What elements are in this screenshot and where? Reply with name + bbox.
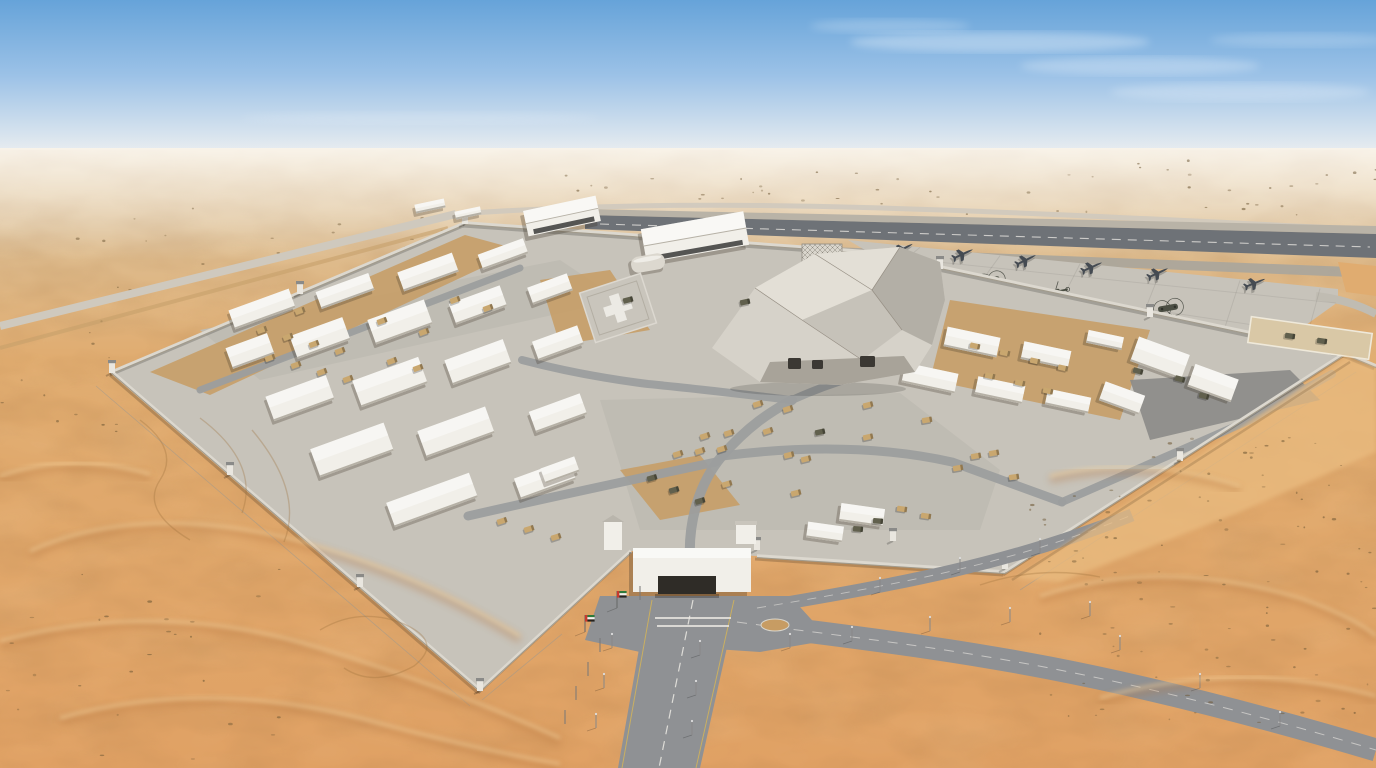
shrub <box>1328 485 1330 486</box>
shrub <box>1095 715 1097 716</box>
entrance-opening <box>860 356 875 367</box>
shrub <box>129 671 133 673</box>
shrub <box>1271 639 1276 641</box>
shrub <box>101 424 104 426</box>
shrub <box>81 574 83 575</box>
shrub <box>277 716 281 718</box>
shrub <box>1170 606 1175 607</box>
shrub <box>1105 536 1109 539</box>
shrub <box>1117 655 1120 657</box>
shrub <box>1296 492 1298 495</box>
shrub <box>1188 186 1191 188</box>
shrub <box>145 240 147 241</box>
cloud <box>1020 57 1260 75</box>
shrub <box>759 185 762 187</box>
shrub <box>1250 456 1253 458</box>
shrub <box>1216 657 1219 659</box>
shrub <box>271 238 274 239</box>
shrub <box>1289 185 1293 186</box>
shrub <box>1249 452 1254 453</box>
shrub <box>1243 452 1247 454</box>
shrub <box>929 191 932 193</box>
shrub <box>1255 447 1257 448</box>
shrub <box>1228 189 1232 191</box>
gate-bay <box>658 576 716 594</box>
shrub <box>590 185 592 187</box>
shrub <box>1082 558 1084 559</box>
shrub <box>1119 496 1121 497</box>
shrub <box>855 173 858 174</box>
aerial-photograph: Aerial photograph of a walled military b… <box>0 0 1376 768</box>
shrub <box>1048 561 1051 562</box>
shrub <box>1303 526 1305 528</box>
shrub <box>1297 526 1299 527</box>
shrub <box>9 643 13 644</box>
shrub <box>1137 163 1140 165</box>
shrub <box>1208 701 1213 703</box>
shrub <box>6 690 10 691</box>
shrub <box>1068 715 1070 717</box>
shrub <box>133 218 135 219</box>
shrub <box>1315 183 1318 184</box>
shrub <box>203 680 205 682</box>
shrub <box>1365 587 1368 588</box>
shrub <box>1180 470 1182 472</box>
shrub <box>1166 169 1169 171</box>
shrub <box>76 238 80 240</box>
shrub <box>117 287 119 288</box>
shrub <box>1325 174 1328 176</box>
shrub <box>1257 722 1261 723</box>
shrub <box>1139 167 1141 169</box>
shrub <box>604 186 608 188</box>
shrub <box>1029 509 1031 511</box>
shrub <box>1 402 4 403</box>
shrub <box>1314 443 1316 444</box>
cloud <box>850 32 1150 52</box>
shrub <box>1340 465 1342 466</box>
shrub <box>1161 544 1163 546</box>
shrub <box>1137 581 1142 584</box>
shrub <box>98 619 100 621</box>
shrub <box>1110 627 1114 628</box>
shrub <box>1147 500 1151 502</box>
shrub <box>1044 524 1047 526</box>
shrub <box>1105 511 1110 513</box>
shrub <box>701 194 705 196</box>
shrub <box>1074 550 1079 552</box>
shrub <box>876 189 880 191</box>
shrub <box>650 178 654 179</box>
shrub <box>117 714 119 716</box>
entrance-opening <box>788 358 801 369</box>
shrub <box>576 190 579 192</box>
shrub <box>1207 500 1209 502</box>
shrub <box>1315 674 1318 675</box>
shrub <box>228 723 233 726</box>
shrub <box>1242 208 1246 210</box>
cloud <box>240 112 600 124</box>
shrub <box>1187 159 1190 162</box>
shrub <box>164 618 169 620</box>
shrub <box>1113 646 1115 648</box>
shrub <box>1264 445 1268 447</box>
entrance-opening <box>812 360 823 369</box>
shrub <box>1323 516 1325 518</box>
shrub <box>1073 495 1076 497</box>
shrub <box>1368 552 1371 554</box>
shrub <box>43 394 45 396</box>
shrub <box>1072 560 1077 562</box>
cloud <box>810 19 970 33</box>
shrub <box>1353 171 1357 174</box>
shrub <box>1226 666 1230 668</box>
shrub <box>192 208 194 210</box>
shrub <box>1204 575 1209 576</box>
shrub <box>278 569 281 570</box>
shrub <box>740 178 742 180</box>
shrub <box>91 343 94 345</box>
shrub <box>271 734 275 735</box>
shrub <box>1113 572 1116 574</box>
shrub <box>1281 205 1284 207</box>
shrub <box>1101 580 1103 581</box>
shrub <box>698 198 701 199</box>
shrub <box>1281 440 1284 442</box>
shrub <box>1224 528 1228 531</box>
traffic-island <box>761 619 789 631</box>
shrub <box>1280 544 1285 545</box>
shrub <box>1315 570 1318 572</box>
shrub <box>1103 633 1107 635</box>
shrub <box>256 595 261 597</box>
shrub <box>338 223 342 225</box>
shrub <box>768 193 770 195</box>
shrub <box>1085 211 1087 213</box>
shrub <box>30 617 35 618</box>
shrub <box>1332 518 1336 520</box>
shrub <box>1347 573 1350 575</box>
shrub <box>1346 628 1350 630</box>
shrub <box>1030 504 1035 506</box>
shrub <box>1246 203 1249 205</box>
shrub <box>761 190 763 192</box>
shrub <box>1185 695 1190 697</box>
shrub <box>1042 518 1046 520</box>
shrub <box>78 685 81 686</box>
shrub <box>1205 649 1209 651</box>
shrub <box>1267 581 1270 582</box>
gate-plaza <box>585 596 830 652</box>
shrub <box>1296 214 1298 215</box>
shrub <box>190 621 195 623</box>
shrub <box>1140 651 1142 653</box>
shrub <box>1092 176 1094 178</box>
scene-svg: Aerial photograph of a walled military b… <box>0 0 1376 768</box>
shrub <box>836 198 840 199</box>
shrub <box>1177 459 1181 461</box>
shrub <box>1067 174 1070 175</box>
shrub <box>1206 679 1210 682</box>
shrub <box>115 424 118 425</box>
gate-tower <box>604 522 622 550</box>
shrub <box>1028 558 1031 559</box>
shrub <box>1109 490 1113 492</box>
shrub <box>1027 191 1031 193</box>
shrub <box>816 171 818 173</box>
shrub <box>33 674 37 677</box>
shrub <box>1169 623 1173 624</box>
shrub <box>1158 571 1160 573</box>
shrub <box>100 755 105 756</box>
shrub <box>74 414 77 415</box>
shrub <box>1205 207 1208 208</box>
shrub <box>880 203 883 205</box>
shrub <box>1301 499 1303 501</box>
shrub <box>104 616 109 618</box>
shrub <box>1316 700 1321 702</box>
shrub <box>1360 581 1362 582</box>
shrub <box>1266 607 1268 609</box>
shrub <box>89 332 91 333</box>
shrub <box>1222 584 1225 586</box>
shrub <box>1113 537 1117 539</box>
shrub <box>1281 713 1285 715</box>
shrub <box>1190 438 1194 440</box>
shrub <box>936 196 939 197</box>
shrub <box>17 709 19 711</box>
shrub <box>1085 583 1088 586</box>
shrub <box>1219 519 1222 521</box>
shrub <box>1039 632 1041 635</box>
shrub <box>565 175 568 177</box>
shrub <box>201 263 204 265</box>
shrub <box>102 240 105 243</box>
shrub <box>1207 472 1210 475</box>
guard-hut <box>736 524 756 544</box>
shrub <box>896 178 899 180</box>
shrub <box>332 232 335 234</box>
shrub <box>1266 625 1269 627</box>
shrub <box>115 431 118 432</box>
shrub <box>752 192 754 193</box>
shrub <box>164 235 166 237</box>
shrub <box>1056 210 1059 212</box>
shrub <box>1300 712 1304 714</box>
shrub <box>1228 628 1231 629</box>
shrub <box>147 654 152 655</box>
shrub <box>1155 676 1157 678</box>
shrub <box>1050 694 1053 696</box>
shrub <box>1266 612 1268 614</box>
shrub <box>56 420 59 422</box>
shrub <box>1288 437 1291 438</box>
shrub <box>1255 204 1259 205</box>
shrub <box>174 634 177 635</box>
shrub <box>108 357 110 358</box>
shrub <box>147 600 152 602</box>
shrub <box>721 198 724 199</box>
shrub <box>1341 708 1344 710</box>
shrub <box>1262 474 1264 476</box>
shrub <box>1199 496 1201 498</box>
shrub <box>1269 187 1272 189</box>
shrub <box>966 213 968 215</box>
shrub <box>1168 442 1173 444</box>
shrub <box>191 758 195 759</box>
cloud <box>1110 83 1370 101</box>
shrub <box>1304 648 1307 650</box>
shrub <box>1194 712 1197 713</box>
sky <box>0 0 1376 152</box>
shrub <box>166 631 171 633</box>
shrub <box>1262 486 1266 487</box>
shrub <box>1082 683 1085 684</box>
shrub <box>1139 598 1143 600</box>
shrub <box>1188 174 1192 176</box>
shrub <box>1354 712 1356 714</box>
shrub <box>190 636 192 638</box>
shrub <box>1293 666 1296 668</box>
shrub <box>1100 708 1105 710</box>
shrub <box>1169 719 1171 721</box>
shrub <box>1358 548 1360 550</box>
shrub <box>1367 683 1369 685</box>
shrub <box>1152 456 1156 458</box>
shrub <box>801 199 805 201</box>
shrub <box>21 379 23 381</box>
